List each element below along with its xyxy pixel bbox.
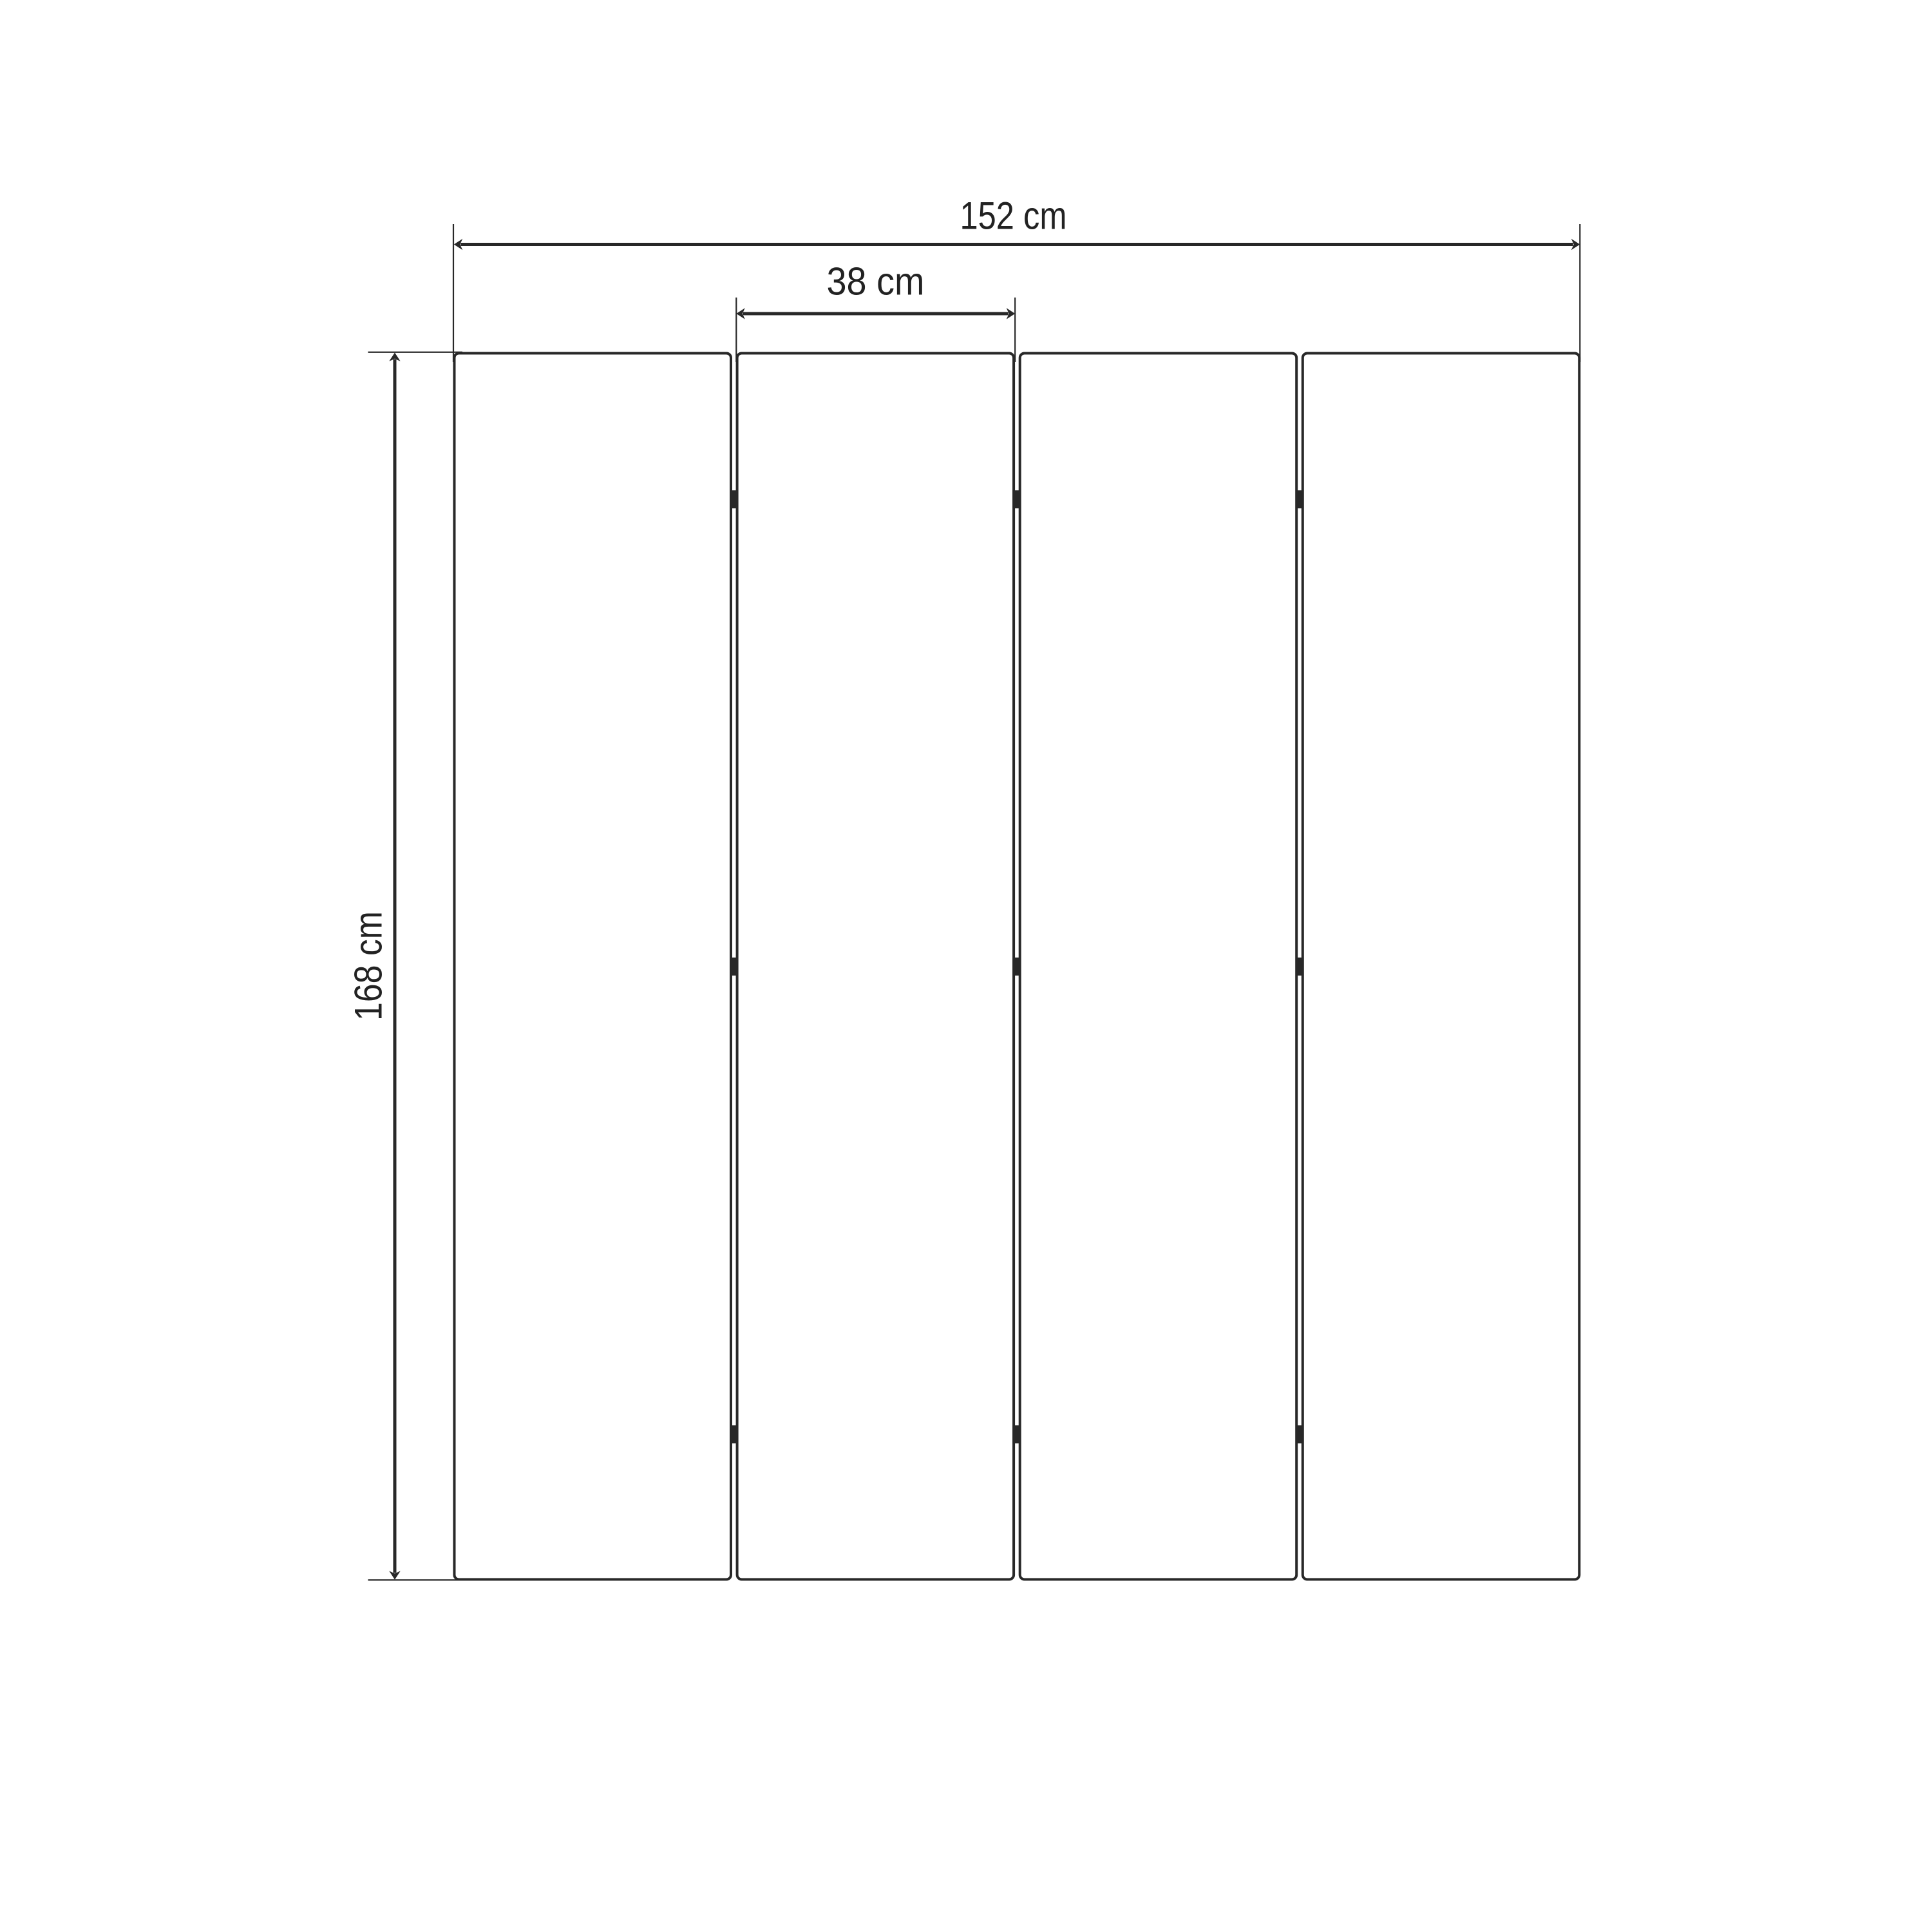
svg-text:38 cm: 38 cm <box>827 260 925 303</box>
svg-text:152 cm: 152 cm <box>960 194 1067 238</box>
svg-text:168 cm: 168 cm <box>347 911 390 1021</box>
